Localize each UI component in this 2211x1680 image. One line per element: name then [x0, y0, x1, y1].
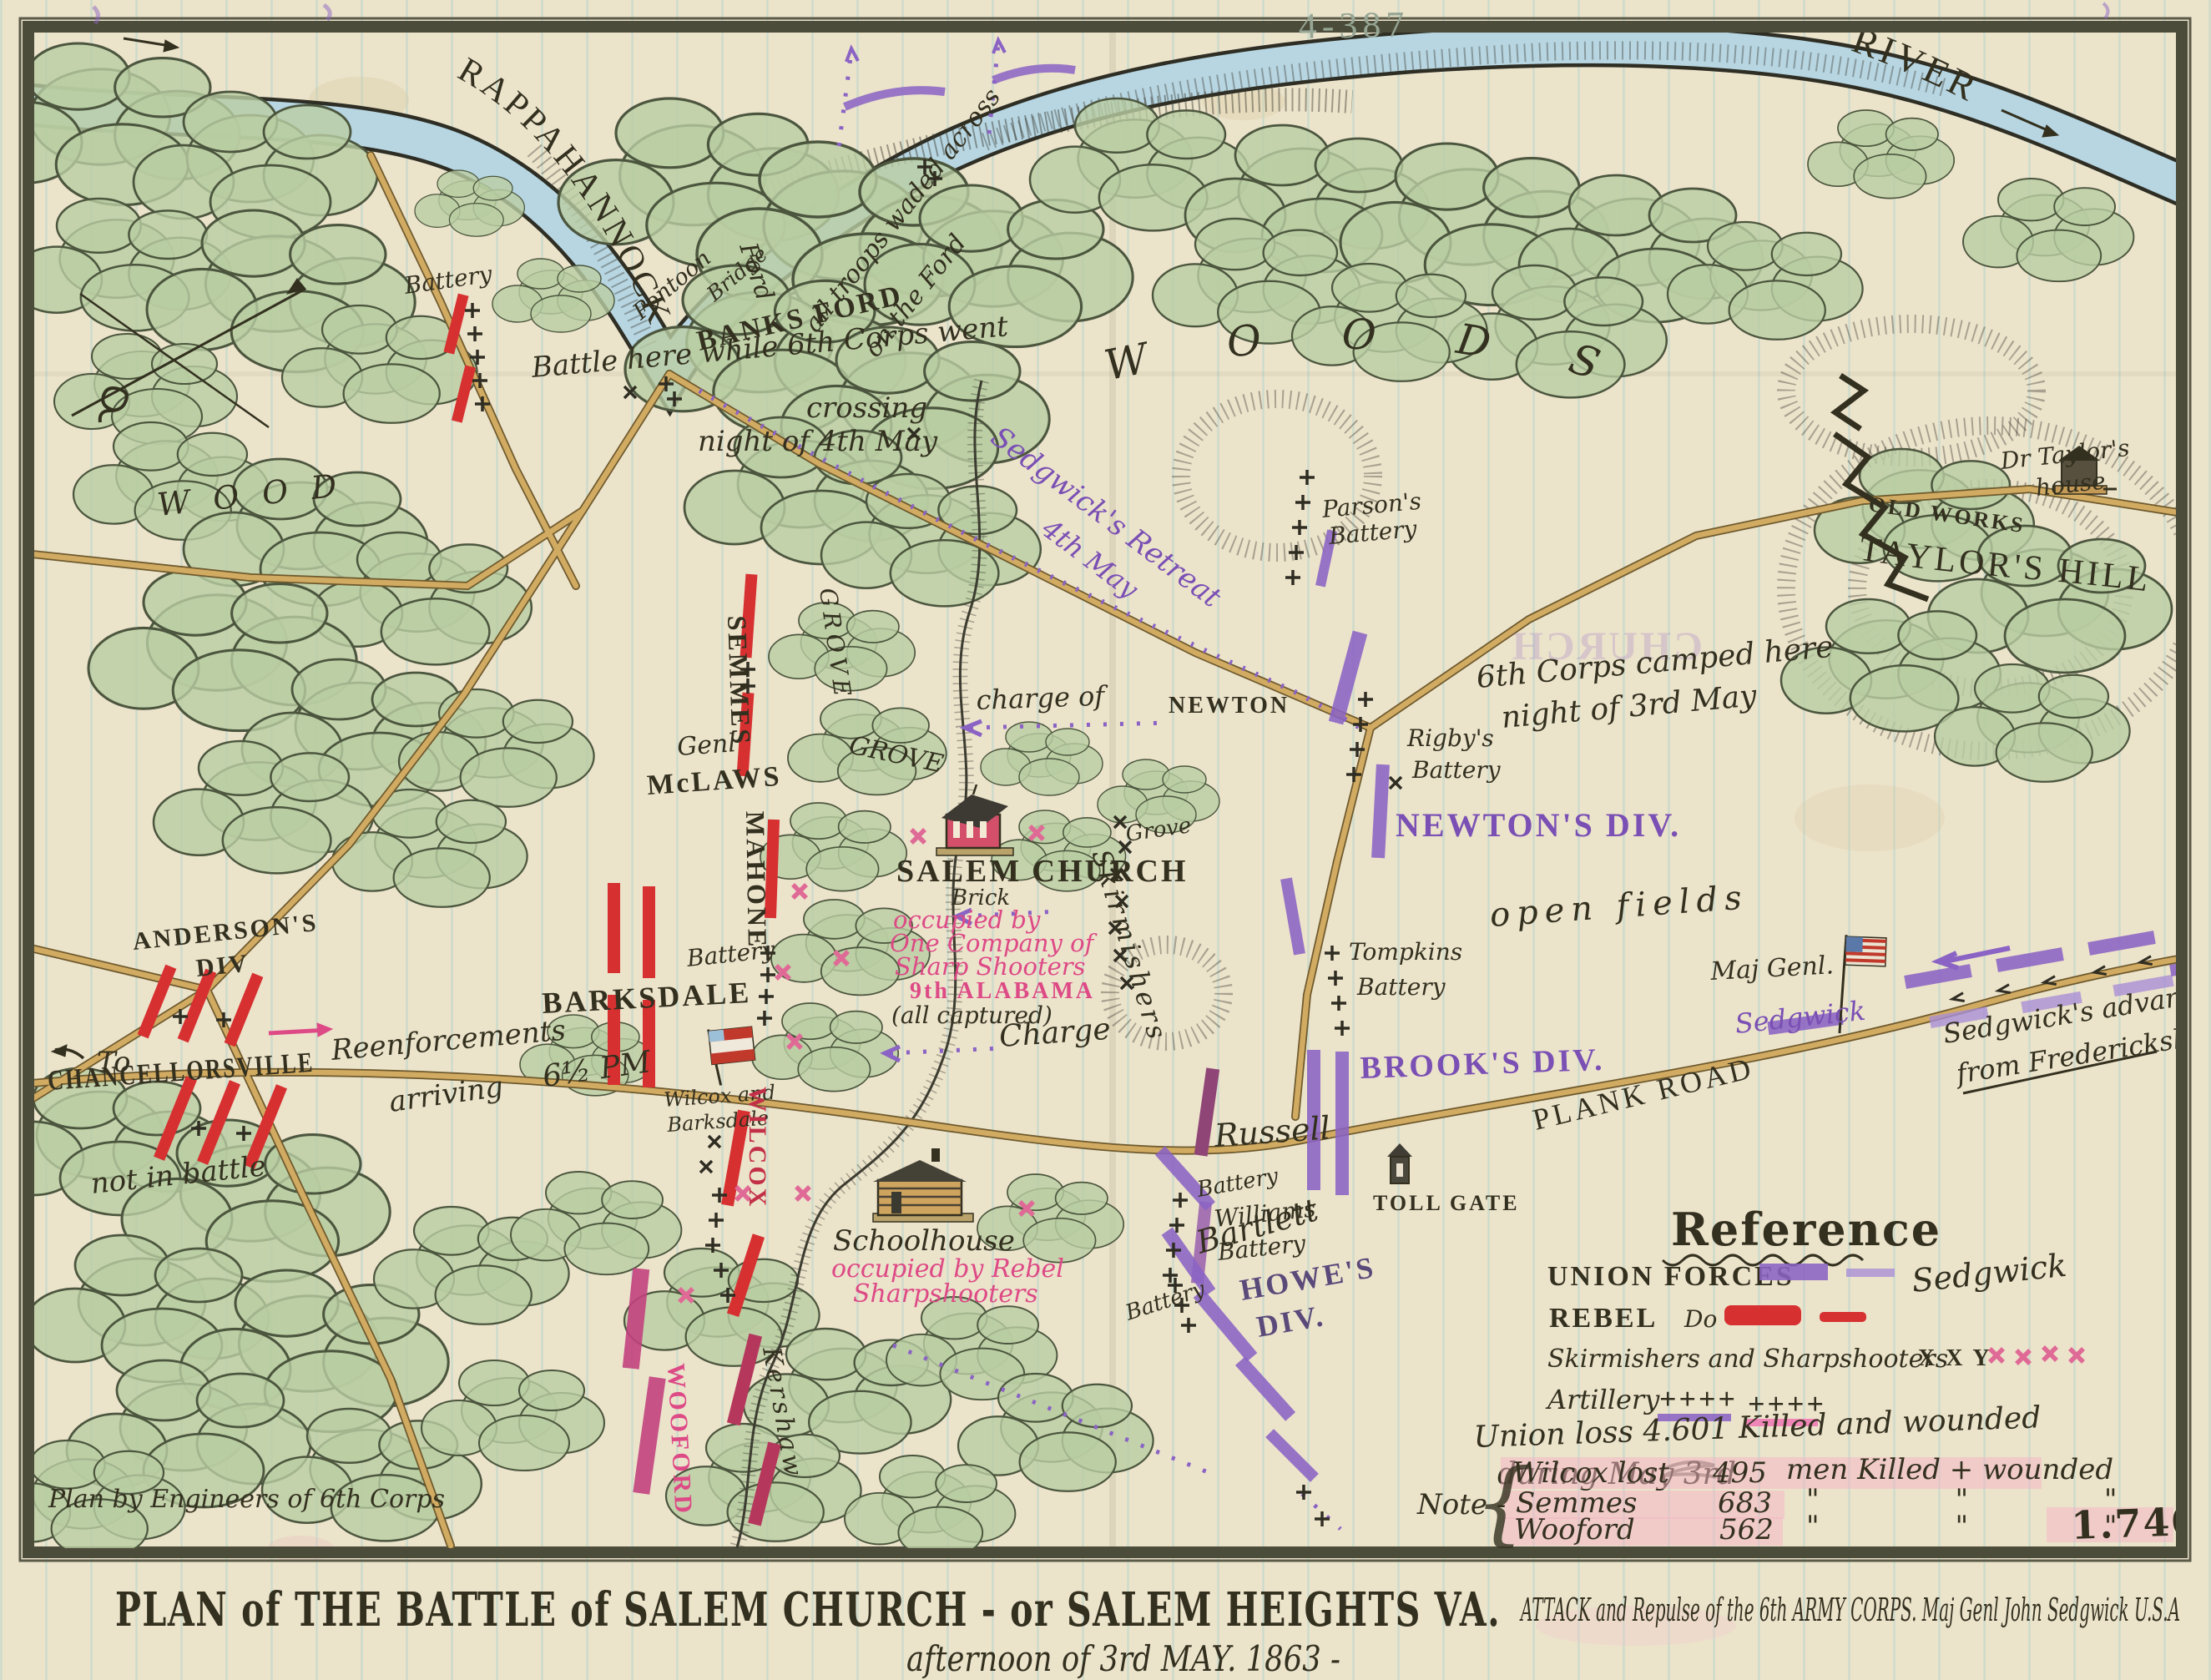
casualty-note: Note - { Wilcox lost 495 men Killed + wo… [1416, 1449, 2200, 1556]
legend-rebel-label: REBEL [1549, 1303, 1658, 1334]
rigbys-label-1: Rigby's [1406, 724, 1494, 752]
legend-ditto-label: Do [1683, 1305, 1717, 1333]
legend-skirmishers-label: Skirmishers and Sharpshooters [1547, 1345, 1948, 1374]
note-row-1-name: Wilcox lost [1512, 1456, 1669, 1490]
legend-rebel-bar-1 [1724, 1305, 1801, 1325]
note-row-3-value: 562 [1719, 1513, 1774, 1546]
note-row-1-suffix: men Killed + wounded [1786, 1453, 2113, 1486]
salem-church-label: SALEM CHURCH [896, 854, 1189, 889]
map-page: RAPPAHANNOCK RIVER Ford Pontoon Bridge a… [0, 0, 2211, 1680]
mahone-label: MAHONE [740, 810, 773, 949]
legend-union-label: UNION FORCES [1547, 1261, 1795, 1292]
battle-note-2: crossing [806, 391, 927, 425]
toll-gate-label: TOLL GATE [1373, 1191, 1520, 1215]
note-row-1-value: 495 [1712, 1456, 1767, 1490]
battle-map-canvas: RAPPAHANNOCK RIVER Ford Pontoon Bridge a… [0, 0, 2211, 1680]
title-line-3: afternoon of 3rd MAY. 1863 - [906, 1638, 1340, 1679]
archival-number: 4-387 [1298, 4, 1409, 47]
mclaws-label-1: Genl [676, 729, 737, 762]
legend-skirmisher-marks: X X Y [1918, 1345, 1992, 1371]
title-line-2: ATTACK and Repulse of the 6th ARMY CORPS… [1519, 1592, 2180, 1628]
tompkins-label-1: Tompkins [1349, 938, 1462, 966]
note-row-3-name: Wooford [1514, 1513, 1635, 1546]
rigbys-label-2: Battery [1411, 756, 1502, 784]
legend-union-bar-1 [1759, 1264, 1828, 1280]
legend-union-bar-2 [1846, 1269, 1895, 1277]
legend-artillery-marks-1: ++++ [1659, 1382, 1738, 1415]
wilcox-label: WILCOX [744, 1087, 771, 1208]
occupied-label-3: Sharp Shooters [895, 952, 1086, 981]
occupied-label-4: 9th ALABAMA [910, 978, 1095, 1004]
legend-rebel-bar-2 [1820, 1312, 1866, 1322]
newton-label: NEWTON [1169, 693, 1290, 719]
schoolhouse-label-1: Schoolhouse [833, 1224, 1015, 1258]
semmes-label: SEMMES [722, 615, 756, 747]
newtons-div-label: NEWTON'S DIV. [1396, 806, 1681, 844]
schoolhouse-label-3: Sharpshooters [853, 1279, 1038, 1309]
legend-heading: Reference [1671, 1203, 1941, 1256]
charge-of-label: charge of [976, 679, 1109, 716]
battle-note-3: night of 4th May [698, 425, 938, 458]
credit-label: Plan by Engineers of 6th Corps [48, 1485, 445, 1514]
tompkins-label-2: Battery [1356, 973, 1446, 1001]
andersons-div-label-2: DIV [194, 949, 250, 982]
legend-artillery-label: Artillery [1545, 1384, 1660, 1415]
title-line-1: PLAN of THE BATTLE of SALEM CHURCH - or … [115, 1582, 1501, 1637]
